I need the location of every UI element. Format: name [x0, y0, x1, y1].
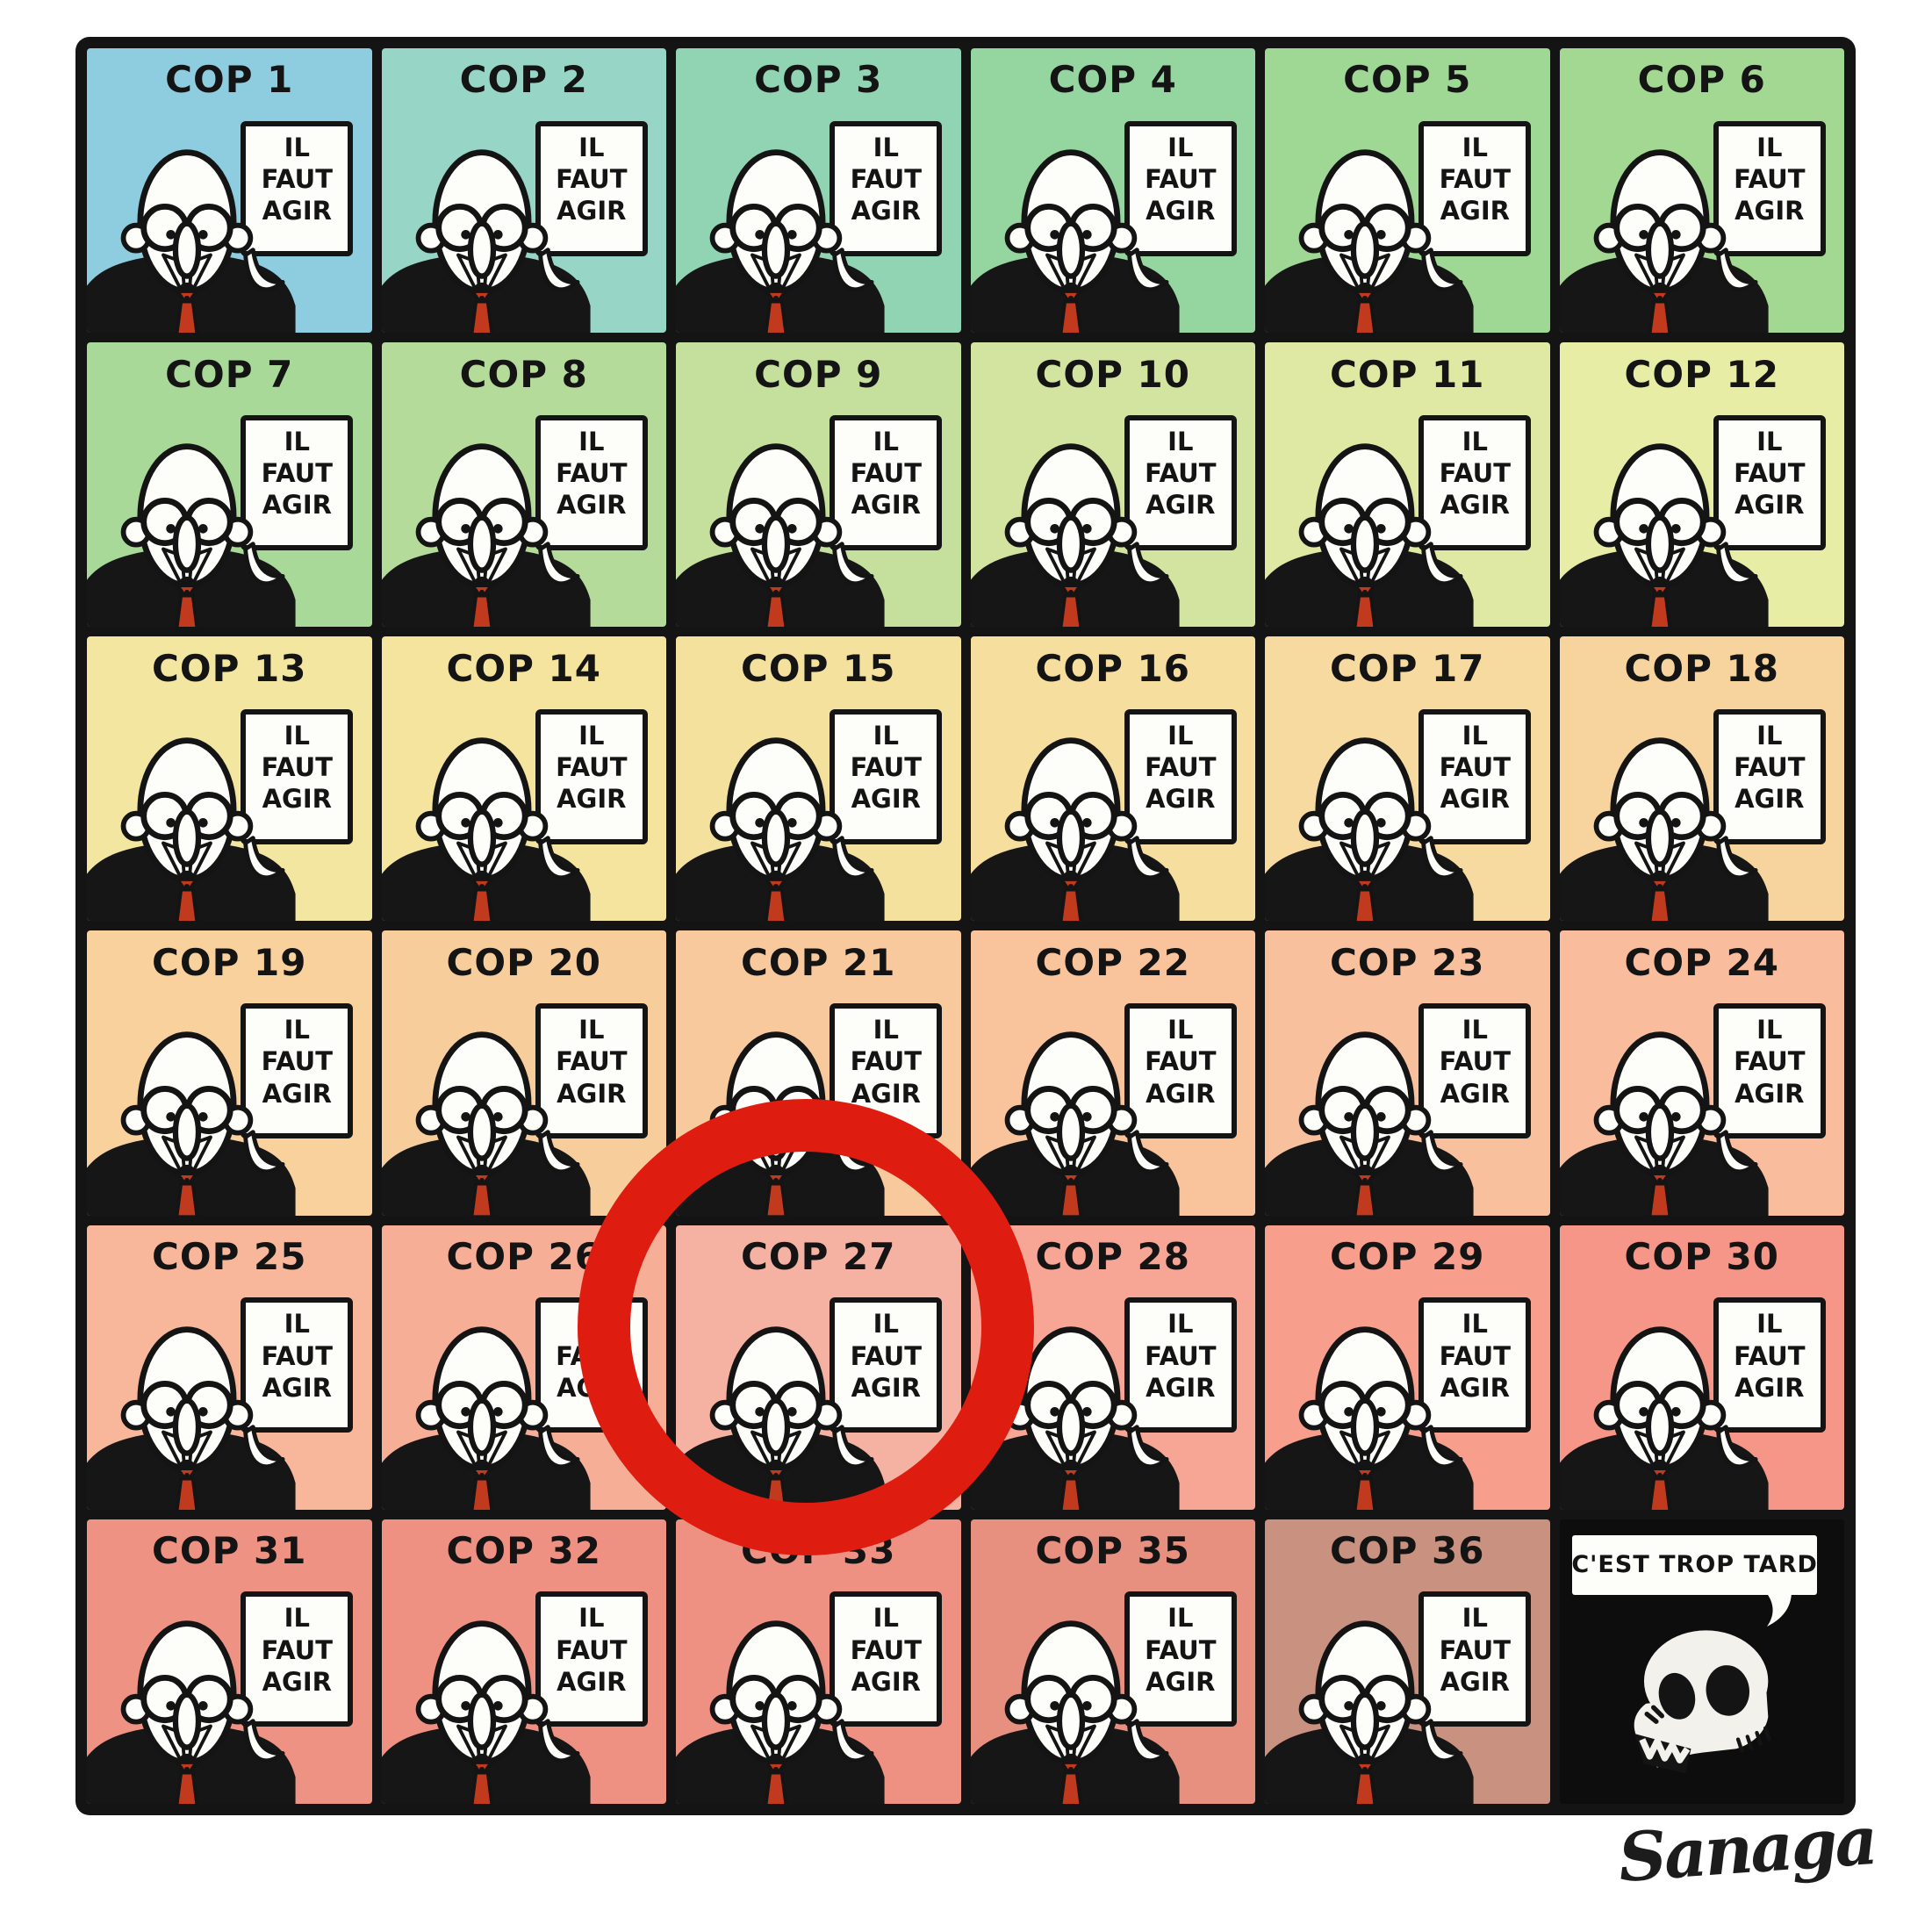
chin-dot: [1657, 1178, 1663, 1183]
delegate-character-illustration: [1265, 930, 1550, 1215]
delegate-character-illustration: [1560, 1225, 1845, 1510]
chin-dot: [1657, 1472, 1663, 1477]
delegate-character-illustration: [87, 1519, 372, 1804]
tie-blade: [765, 1772, 786, 1804]
mouth-shape: [1064, 1165, 1077, 1174]
tie-blade: [765, 302, 786, 334]
cop-cell: COP 2 IL FAUT AGIR: [382, 48, 667, 333]
nose-shape: [1648, 1400, 1670, 1453]
tie-blade: [176, 596, 197, 628]
nose-shape: [765, 812, 787, 865]
nose-shape: [1059, 1400, 1081, 1453]
tie-blade: [1060, 596, 1081, 628]
delegate-character-illustration: [1560, 636, 1845, 921]
mouth-shape: [1358, 1460, 1371, 1469]
mouth-shape: [1358, 283, 1371, 292]
delegate-character-illustration: [971, 342, 1256, 627]
mouth-shape: [475, 1754, 488, 1763]
cop-cell: COP 10 IL FAUT AGIR: [971, 342, 1256, 627]
cop-cell: COP 29 IL FAUT AGIR: [1265, 1225, 1550, 1510]
nose-shape: [176, 224, 198, 277]
nose-shape: [1059, 518, 1081, 571]
delegate-character-illustration: [1265, 48, 1550, 333]
mouth-shape: [1064, 577, 1077, 586]
tie-blade: [765, 1184, 786, 1216]
chin-dot: [1068, 884, 1074, 889]
delegate-character-illustration: [1265, 636, 1550, 921]
tie-blade: [471, 302, 492, 334]
tie-blade: [176, 890, 197, 922]
delegate-character-illustration: [1560, 342, 1845, 627]
mouth-shape: [1653, 1165, 1666, 1174]
nose-shape: [1059, 1106, 1081, 1159]
mouth-shape: [180, 1460, 193, 1469]
mouth-shape: [1358, 1165, 1371, 1174]
nose-shape: [1354, 1400, 1376, 1453]
delegate-character-illustration: [382, 930, 667, 1215]
tie-blade: [1354, 1184, 1375, 1216]
mouth-shape: [769, 1754, 782, 1763]
chin-dot: [184, 1472, 190, 1477]
cop-cell: COP 12 IL FAUT AGIR: [1560, 342, 1845, 627]
cop-cell: COP 23 IL FAUT AGIR: [1265, 930, 1550, 1215]
mouth-shape: [1653, 577, 1666, 586]
comic-page: COP 1 IL FAUT AGIR: [0, 0, 1932, 1932]
chin-dot: [1362, 884, 1368, 889]
cop-cell: COP 21 IL FAUT AGIR: [676, 930, 961, 1215]
cop-cell: COP 30 IL FAUT AGIR: [1560, 1225, 1845, 1510]
mouth-shape: [1358, 577, 1371, 586]
tie-blade: [176, 1478, 197, 1510]
tie-blade: [1354, 1772, 1375, 1804]
delegate-character-illustration: [87, 930, 372, 1215]
cop-cell: COP 7 IL FAUT AGIR: [87, 342, 372, 627]
delegate-character-illustration: [971, 636, 1256, 921]
chin-dot: [773, 1767, 779, 1772]
cop-cell: COP 8 IL FAUT AGIR: [382, 342, 667, 627]
delegate-character-illustration: [676, 48, 961, 333]
chin-dot: [1362, 1178, 1368, 1183]
delegate-character-illustration: [382, 636, 667, 921]
tie-blade: [765, 1478, 786, 1510]
chin-dot: [479, 590, 485, 595]
tie-blade: [1060, 890, 1081, 922]
tie-blade: [176, 1184, 197, 1216]
cop-cell: COP 3 IL FAUT AGIR: [676, 48, 961, 333]
chin-dot: [1068, 1472, 1074, 1477]
cop-cell: COP 33 IL FAUT AGIR: [676, 1519, 961, 1804]
nose-shape: [1354, 1106, 1376, 1159]
cop-cell: COP 1 IL FAUT AGIR: [87, 48, 372, 333]
too-late-bubble: C'EST TROP TARD: [1572, 1535, 1817, 1595]
chin-dot: [479, 1472, 485, 1477]
delegate-character-illustration: [1265, 1519, 1550, 1804]
chin-dot: [1657, 884, 1663, 889]
mouth-shape: [1064, 1460, 1077, 1469]
cop-cell: COP 36 IL FAUT AGIR: [1265, 1519, 1550, 1804]
nose-shape: [1648, 224, 1670, 277]
tie-blade: [176, 302, 197, 334]
cop-cell: COP 19 IL FAUT AGIR: [87, 930, 372, 1215]
tie-blade: [1354, 596, 1375, 628]
mouth-shape: [475, 577, 488, 586]
chin-dot: [773, 296, 779, 301]
tie-blade: [1354, 1478, 1375, 1510]
delegate-character-illustration: [971, 1225, 1256, 1510]
tie-blade: [765, 596, 786, 628]
nose-shape: [1648, 1106, 1670, 1159]
tie-blade: [1649, 596, 1670, 628]
nose-shape: [1059, 1695, 1081, 1748]
delegate-character-illustration: [676, 930, 961, 1215]
mouth-shape: [180, 871, 193, 880]
mouth-shape: [475, 1460, 488, 1469]
chin-dot: [773, 590, 779, 595]
delegate-character-illustration: [1265, 342, 1550, 627]
nose-shape: [1354, 1695, 1376, 1748]
delegate-character-illustration: [676, 636, 961, 921]
chin-dot: [479, 1178, 485, 1183]
nose-shape: [470, 518, 492, 571]
tie-blade: [1060, 1478, 1081, 1510]
chin-dot: [773, 884, 779, 889]
tie-blade: [471, 1478, 492, 1510]
cop-cell: COP 18 IL FAUT AGIR: [1560, 636, 1845, 921]
delegate-character-illustration: [87, 48, 372, 333]
delegate-character-illustration: [382, 1519, 667, 1804]
chin-dot: [1068, 1178, 1074, 1183]
cop-cell: COP 31 IL FAUT AGIR: [87, 1519, 372, 1804]
cop-cell: COP 11 IL FAUT AGIR: [1265, 342, 1550, 627]
nose-shape: [765, 224, 787, 277]
mouth-shape: [475, 1165, 488, 1174]
chin-dot: [184, 884, 190, 889]
tie-blade: [1060, 1772, 1081, 1804]
mouth-shape: [1653, 871, 1666, 880]
cop-cell: COP 20 IL FAUT AGIR: [382, 930, 667, 1215]
tie-blade: [471, 1184, 492, 1216]
tie-blade: [1649, 890, 1670, 922]
too-late-text: C'EST TROP TARD: [1571, 1551, 1818, 1578]
mouth-shape: [475, 871, 488, 880]
nose-shape: [1354, 518, 1376, 571]
chin-dot: [479, 1767, 485, 1772]
nose-shape: [765, 1106, 787, 1159]
mouth-shape: [769, 283, 782, 292]
mouth-shape: [1064, 283, 1077, 292]
nose-shape: [1354, 812, 1376, 865]
mouth-shape: [769, 871, 782, 880]
nose-shape: [765, 1695, 787, 1748]
nose-shape: [470, 1400, 492, 1453]
nose-shape: [470, 1695, 492, 1748]
nose-shape: [1648, 518, 1670, 571]
chin-dot: [1068, 590, 1074, 595]
nose-shape: [765, 1400, 787, 1453]
chin-dot: [184, 296, 190, 301]
mouth-shape: [180, 1754, 193, 1763]
delegate-character-illustration: [382, 342, 667, 627]
nose-shape: [176, 1106, 198, 1159]
cop-cell: COP 16 IL FAUT AGIR: [971, 636, 1256, 921]
chin-dot: [1362, 296, 1368, 301]
chin-dot: [1657, 590, 1663, 595]
tie-blade: [1354, 302, 1375, 334]
nose-shape: [470, 224, 492, 277]
skull-icon: [1605, 1622, 1792, 1782]
mouth-shape: [475, 283, 488, 292]
delegate-character-illustration: [1560, 930, 1845, 1215]
nose-shape: [470, 812, 492, 865]
cop-cell: COP 32 IL FAUT AGIR: [382, 1519, 667, 1804]
mouth-shape: [1064, 871, 1077, 880]
tie-blade: [1649, 1478, 1670, 1510]
cop-cell: COP 25 IL FAUT AGIR: [87, 1225, 372, 1510]
delegate-character-illustration: [87, 1225, 372, 1510]
cop-cell: COP 15 IL FAUT AGIR: [676, 636, 961, 921]
cop-cell: COP 28 IL FAUT AGIR: [971, 1225, 1256, 1510]
mouth-shape: [180, 283, 193, 292]
tie-blade: [471, 596, 492, 628]
cop-cell: COP 14 IL FAUT AGIR: [382, 636, 667, 921]
chin-dot: [1068, 1767, 1074, 1772]
chin-dot: [1362, 1767, 1368, 1772]
cop-grid: COP 1 IL FAUT AGIR: [87, 48, 1844, 1804]
chin-dot: [184, 590, 190, 595]
delegate-character-illustration: [87, 342, 372, 627]
nose-shape: [1648, 812, 1670, 865]
delegate-character-illustration: [971, 48, 1256, 333]
mouth-shape: [180, 1165, 193, 1174]
nose-shape: [1059, 224, 1081, 277]
cop-cell: COP 24 IL FAUT AGIR: [1560, 930, 1845, 1215]
chin-dot: [773, 1178, 779, 1183]
delegate-character-illustration: [87, 636, 372, 921]
delegate-character-illustration: [382, 48, 667, 333]
chin-dot: [773, 1472, 779, 1477]
cop-cell: COP 6 IL FAUT AGIR: [1560, 48, 1845, 333]
cop-cell: COP 22 IL FAUT AGIR: [971, 930, 1256, 1215]
nose-shape: [1059, 812, 1081, 865]
cop-cell: COP 13 IL FAUT AGIR: [87, 636, 372, 921]
delegate-character-illustration: [971, 930, 1256, 1215]
chin-dot: [479, 296, 485, 301]
nose-shape: [176, 518, 198, 571]
tie-blade: [176, 1772, 197, 1804]
chin-dot: [184, 1178, 190, 1183]
cop-cell: COP 27 IL FAUT AGIR: [676, 1225, 961, 1510]
delegate-character-illustration: [1265, 1225, 1550, 1510]
chin-dot: [1657, 296, 1663, 301]
delegate-character-illustration: [676, 1519, 961, 1804]
tie-blade: [1354, 890, 1375, 922]
nose-shape: [470, 1106, 492, 1159]
nose-shape: [765, 518, 787, 571]
tie-blade: [1649, 302, 1670, 334]
mouth-shape: [769, 577, 782, 586]
mouth-shape: [769, 1165, 782, 1174]
chin-dot: [1068, 296, 1074, 301]
nose-shape: [176, 1695, 198, 1748]
mouth-shape: [1064, 1754, 1077, 1763]
chin-dot: [479, 884, 485, 889]
cop-cell: COP 35 IL FAUT AGIR: [971, 1519, 1256, 1804]
chin-dot: [1362, 1472, 1368, 1477]
cop-cell: COP 9 IL FAUT AGIR: [676, 342, 961, 627]
nose-shape: [176, 1400, 198, 1453]
tie-blade: [765, 890, 786, 922]
comic-frame: COP 1 IL FAUT AGIR: [75, 37, 1856, 1815]
tie-blade: [1060, 302, 1081, 334]
tie-blade: [471, 1772, 492, 1804]
cop-cell: COP 17 IL FAUT AGIR: [1265, 636, 1550, 921]
mouth-shape: [1653, 283, 1666, 292]
cop-cell: COP 26 IL FAUT AGIR: [382, 1225, 667, 1510]
delegate-character-illustration: [382, 1225, 667, 1510]
mouth-shape: [769, 1460, 782, 1469]
mouth-shape: [180, 577, 193, 586]
delegate-character-illustration: [676, 1225, 961, 1510]
nose-shape: [1354, 224, 1376, 277]
tie-blade: [1649, 1184, 1670, 1216]
mouth-shape: [1653, 1460, 1666, 1469]
cop-cell: COP 4 IL FAUT AGIR: [971, 48, 1256, 333]
mouth-shape: [1358, 1754, 1371, 1763]
delegate-character-illustration: [676, 342, 961, 627]
too-late-cell: C'EST TROP TARD: [1560, 1519, 1845, 1804]
delegate-character-illustration: [1560, 48, 1845, 333]
cop-cell: COP 5 IL FAUT AGIR: [1265, 48, 1550, 333]
chin-dot: [184, 1767, 190, 1772]
nose-shape: [176, 812, 198, 865]
tie-blade: [471, 890, 492, 922]
delegate-character-illustration: [971, 1519, 1256, 1804]
tie-blade: [1060, 1184, 1081, 1216]
mouth-shape: [1358, 871, 1371, 880]
too-late-bubble-tail: [1763, 1591, 1799, 1628]
chin-dot: [1362, 590, 1368, 595]
